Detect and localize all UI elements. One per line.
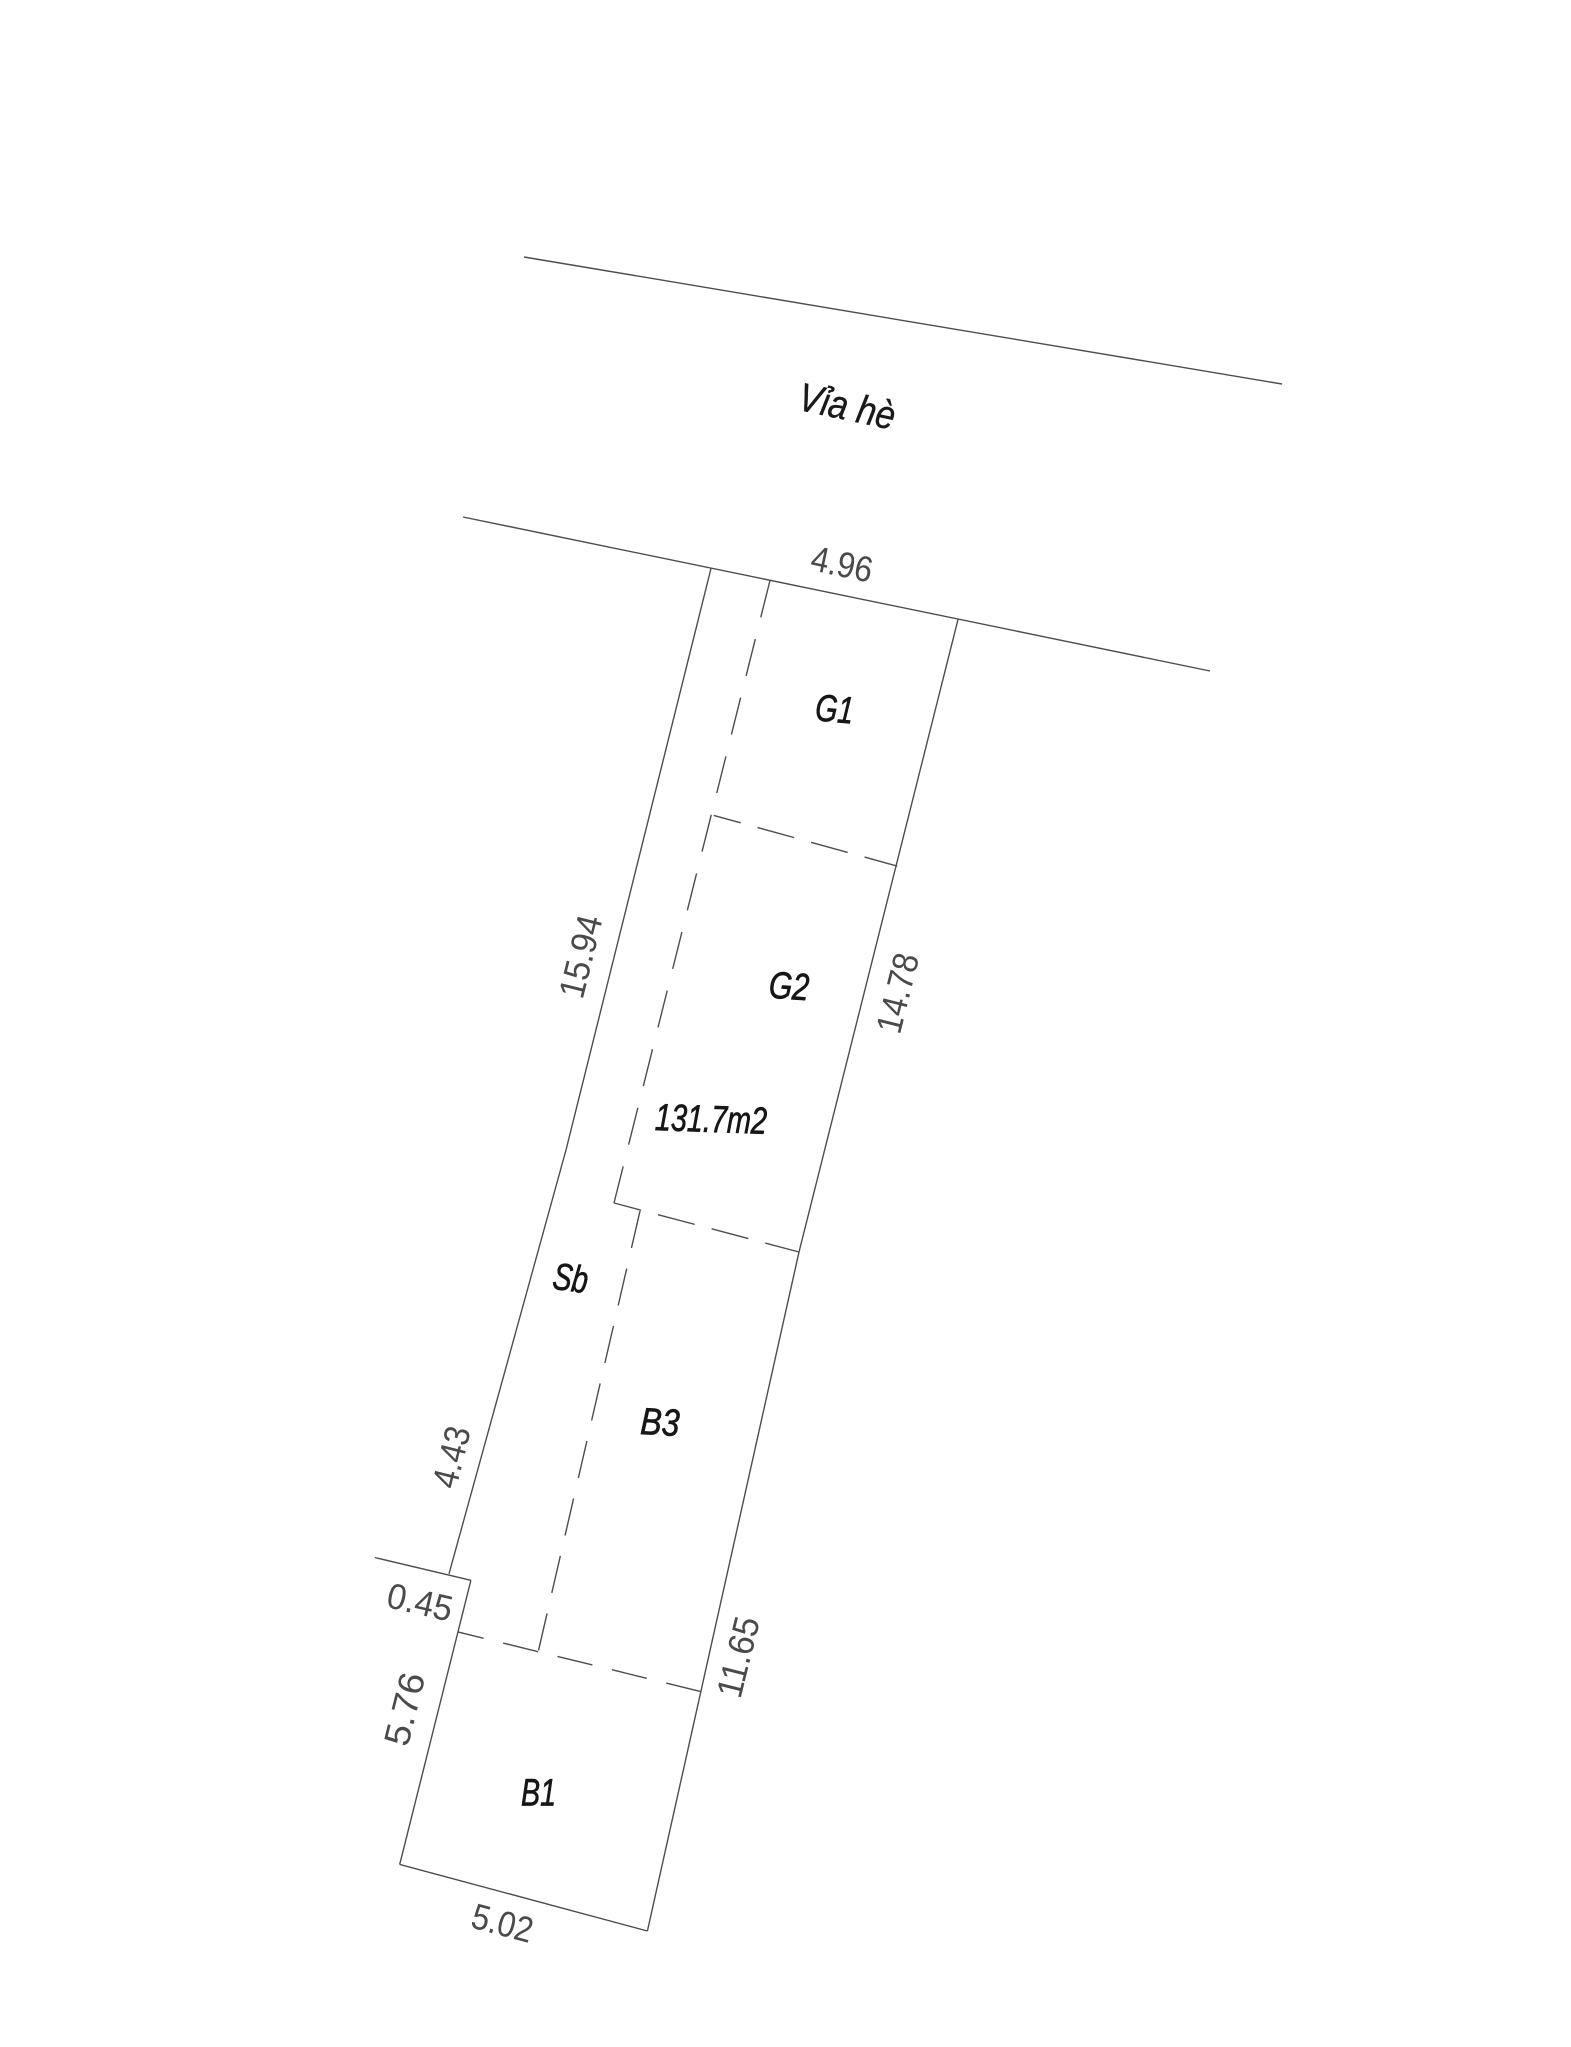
svg-text:131.7m2: 131.7m2	[654, 1097, 767, 1143]
svg-text:G2: G2	[768, 965, 811, 1010]
svg-text:Sb: Sb	[550, 1256, 591, 1302]
svg-text:B3: B3	[639, 1401, 680, 1445]
svg-text:G1: G1	[814, 687, 856, 732]
svg-text:B1: B1	[521, 1773, 556, 1815]
